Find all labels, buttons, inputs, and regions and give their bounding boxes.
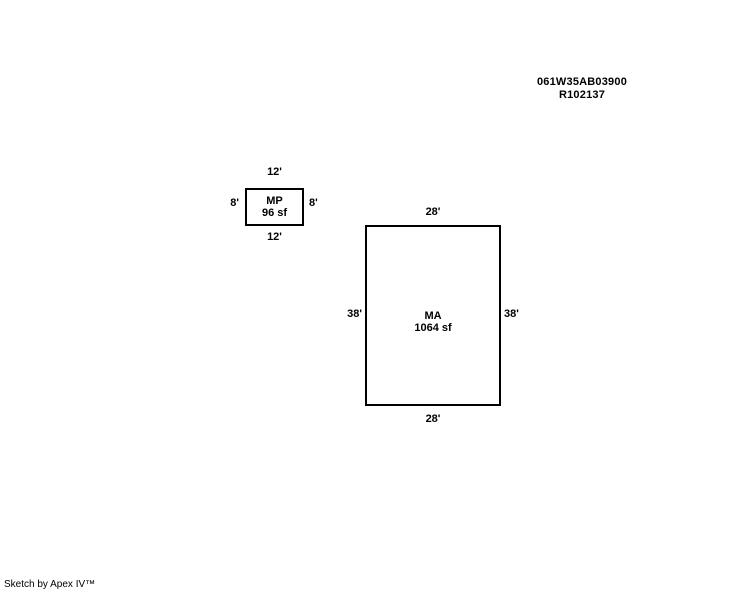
ma-dim-top: 28' (365, 206, 501, 218)
building-mp-outline: MP 96 sf (245, 188, 304, 226)
ma-dim-left: 38' (322, 308, 362, 320)
building-ma-code: MA (414, 310, 451, 322)
mp-dim-left: 8' (199, 197, 239, 209)
parcel-id: 061W35AB03900 (482, 76, 682, 89)
mp-dim-top: 12' (245, 166, 304, 178)
sketch-credit: Sketch by Apex IV™ (4, 579, 95, 591)
mp-dim-bottom: 12' (245, 231, 304, 243)
building-mp-code: MP (262, 195, 287, 207)
account-number: R102137 (482, 89, 682, 102)
building-ma-area: 1064 sf (414, 322, 451, 334)
building-mp-area: 96 sf (262, 207, 287, 219)
sketch-canvas: 061W35AB03900 R102137 12' 8' 8' 12' MP 9… (0, 0, 744, 595)
building-ma-label: MA 1064 sf (414, 310, 451, 334)
ma-dim-bottom: 28' (365, 413, 501, 425)
mp-dim-right: 8' (309, 197, 349, 209)
parcel-header: 061W35AB03900 R102137 (482, 76, 682, 102)
building-mp-label: MP 96 sf (262, 195, 287, 219)
building-ma-outline: MA 1064 sf (365, 225, 501, 406)
ma-dim-right: 38' (504, 308, 544, 320)
